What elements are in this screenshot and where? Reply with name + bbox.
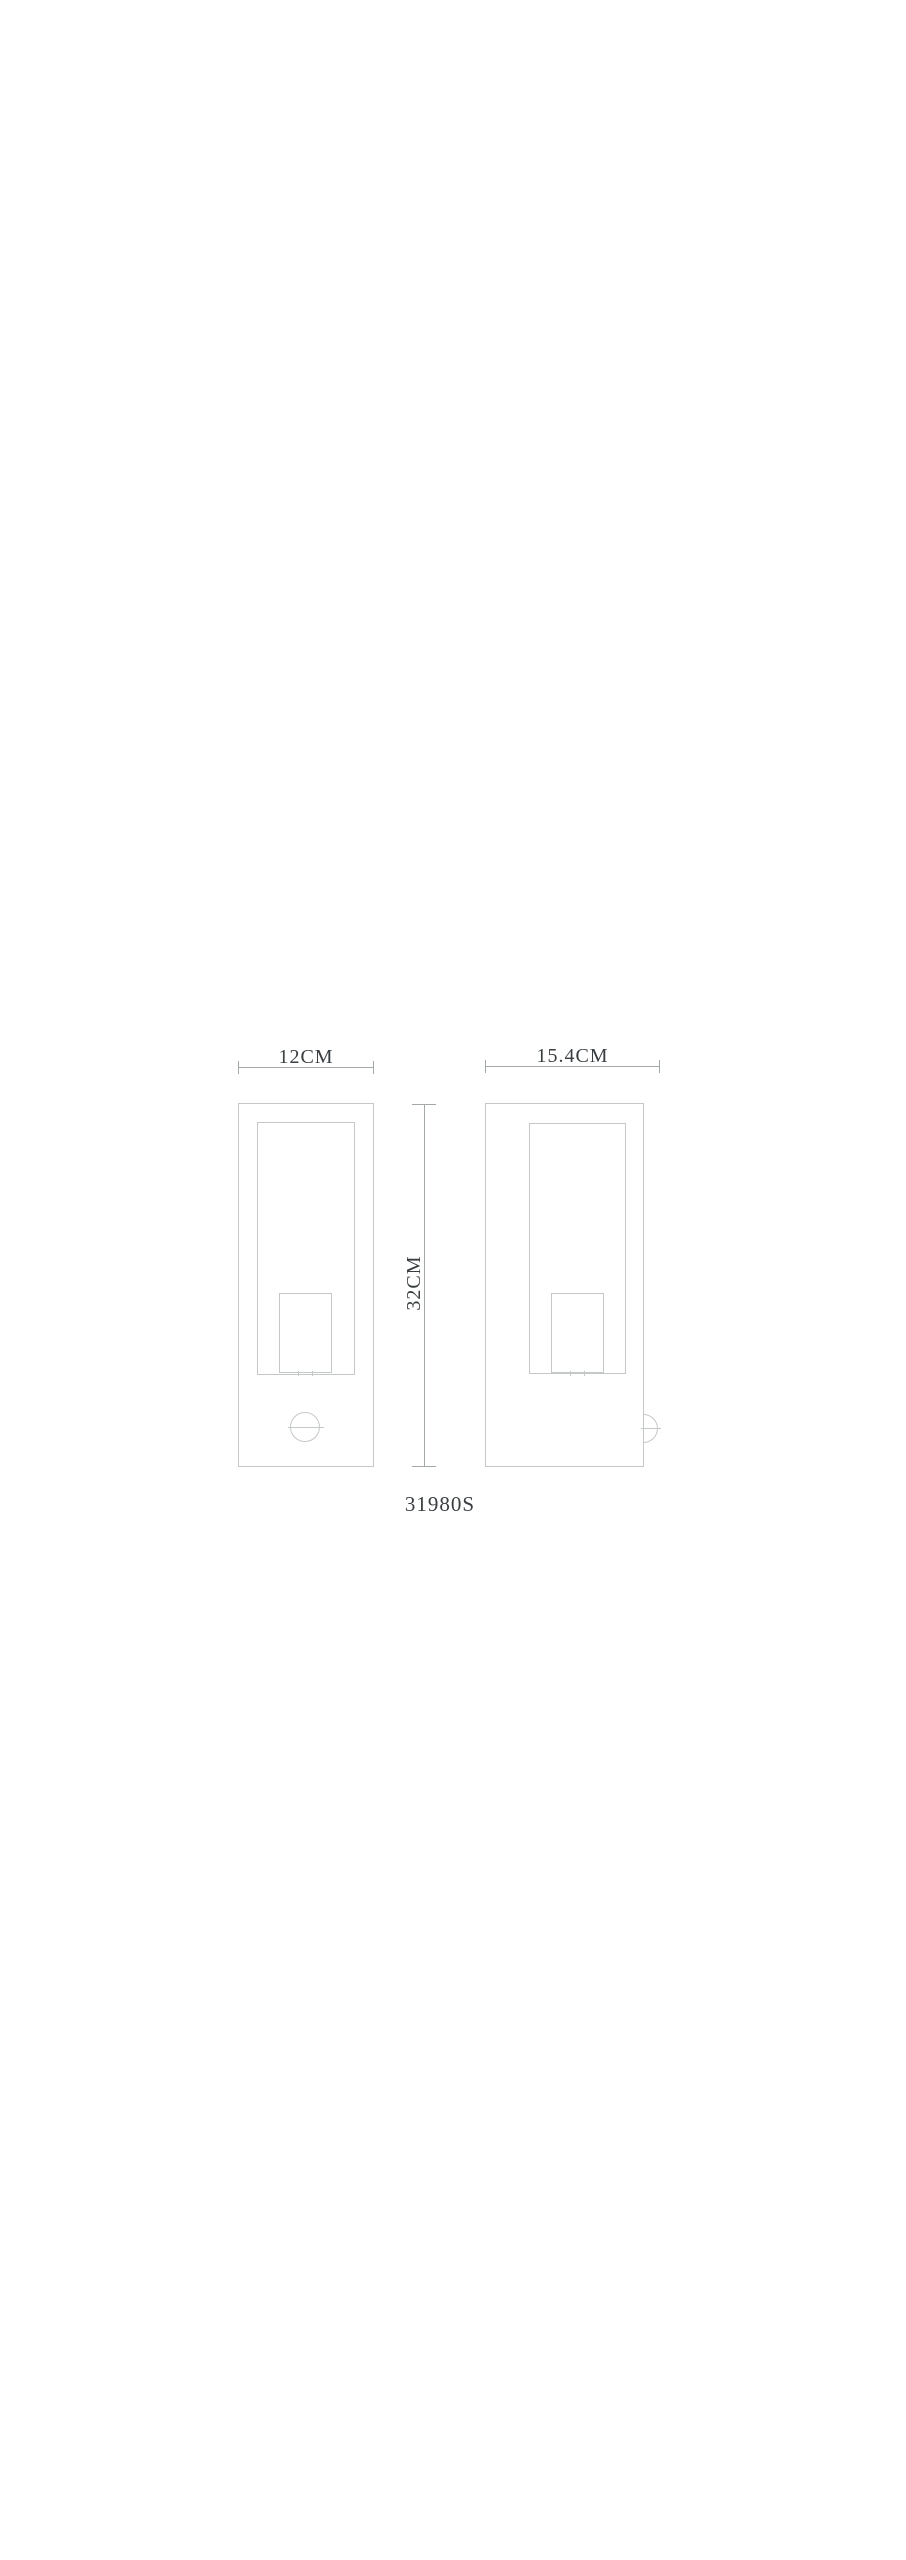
side-view-socket-contact-left bbox=[570, 1371, 571, 1376]
side-width-dimension-line bbox=[485, 1066, 660, 1067]
front-view-bulb-socket-outline bbox=[279, 1293, 332, 1373]
height-dimension-label: 32CM bbox=[403, 1223, 425, 1343]
side-width-dimension-tick-right bbox=[659, 1060, 660, 1073]
technical-drawing-canvas: 12CM 32CM 15.4CM 31980S bbox=[0, 0, 906, 2560]
front-width-dimension-tick-right bbox=[373, 1061, 374, 1074]
side-width-dimension-tick-left bbox=[485, 1060, 486, 1073]
side-view-socket-contact-right bbox=[584, 1371, 585, 1376]
front-width-dimension-line bbox=[238, 1067, 374, 1068]
height-dimension-tick-bottom bbox=[412, 1466, 436, 1467]
front-width-dimension-label: 12CM bbox=[238, 1046, 374, 1068]
product-code-label: 31980S bbox=[390, 1492, 490, 1516]
front-view-socket-contact-left bbox=[298, 1371, 299, 1376]
front-width-dimension-tick-left bbox=[238, 1061, 239, 1074]
side-width-dimension-label: 15.4CM bbox=[485, 1045, 660, 1067]
front-view-sensor-knob-slot bbox=[288, 1427, 324, 1428]
height-dimension-tick-top bbox=[412, 1104, 436, 1105]
side-view-bulb-socket-outline bbox=[551, 1293, 604, 1373]
front-view-socket-contact-right bbox=[312, 1371, 313, 1376]
side-view-sensor-knob-slot bbox=[641, 1428, 661, 1429]
